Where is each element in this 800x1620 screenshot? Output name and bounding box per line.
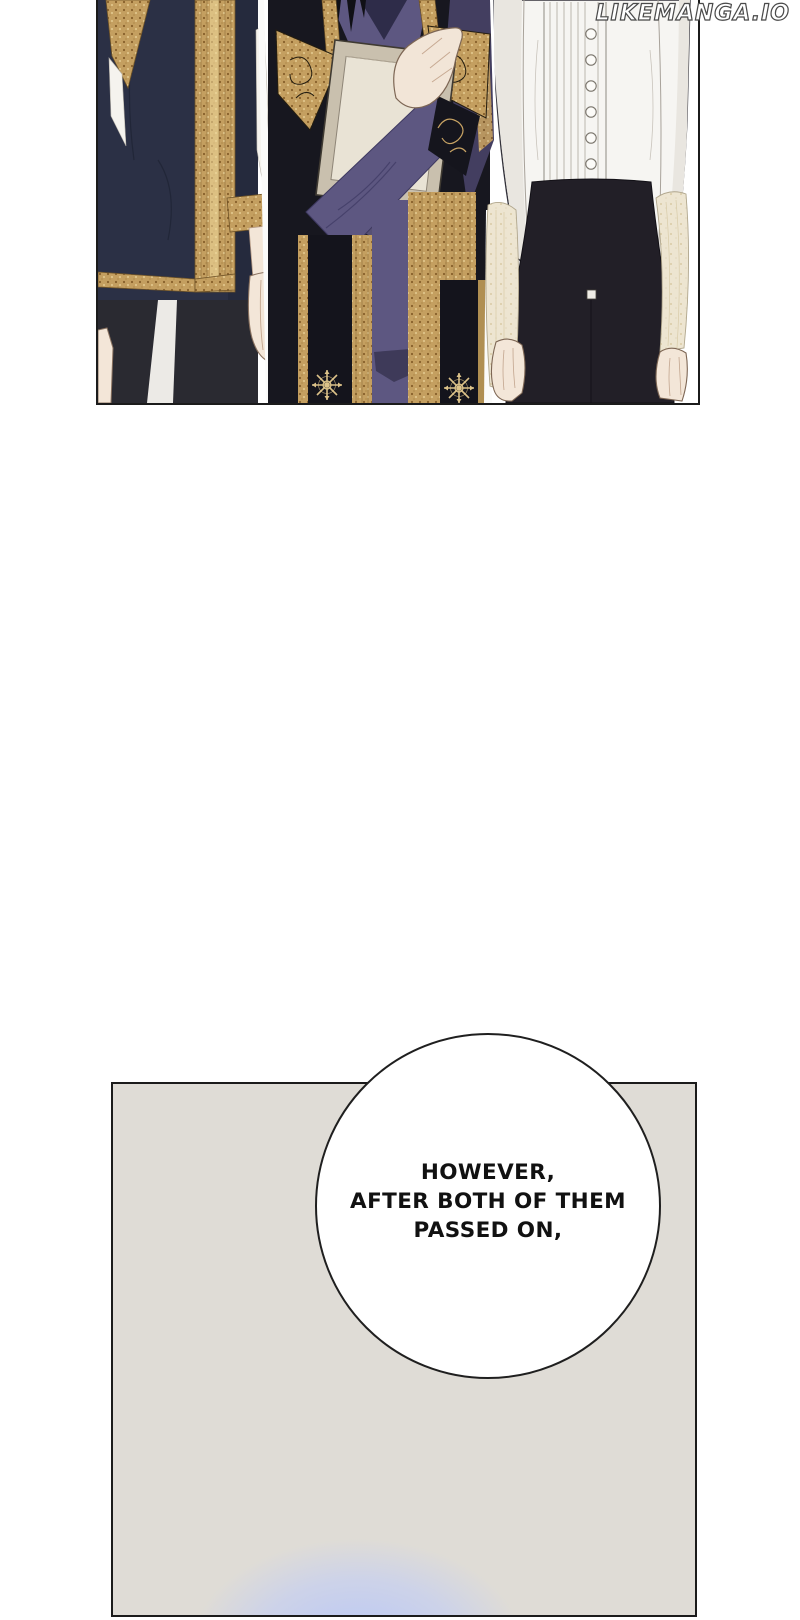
speech-line: AFTER BOTH OF THEM [350, 1187, 626, 1216]
site-watermark: LIKEMANGA.IO [596, 1, 790, 26]
right-figure-left-hand [491, 339, 525, 401]
speech-line: PASSED ON, [350, 1216, 626, 1245]
manga-panel-top [96, 0, 700, 405]
edge-hand [98, 328, 113, 403]
right-figure-right-hand [656, 348, 687, 401]
middle-figure [268, 0, 494, 403]
speech-bubble: HOWEVER, AFTER BOTH OF THEM PASSED ON, [315, 1033, 661, 1379]
right-figure [486, 0, 690, 403]
speech-line: HOWEVER, [350, 1158, 626, 1187]
speech-bubble-text: HOWEVER, AFTER BOTH OF THEM PASSED ON, [350, 1158, 626, 1245]
panel-illustration [98, 0, 698, 403]
manga-page: LIKEMANGA.IO HOWEVER, AFTER BOTH OF THEM… [0, 0, 800, 1620]
